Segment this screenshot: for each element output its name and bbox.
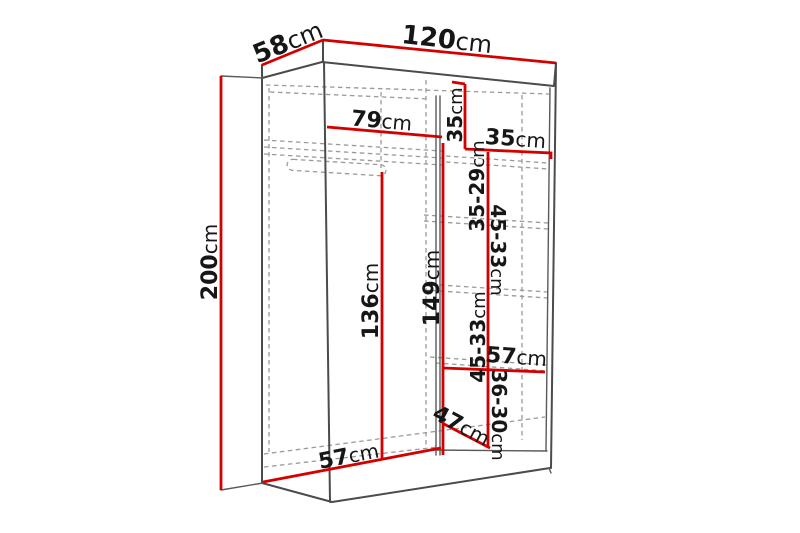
right-height-label: 149cm xyxy=(420,250,445,326)
floor-depth-label: 57cm xyxy=(316,439,381,475)
bottom-depth-label: 47cm xyxy=(428,401,494,452)
width-label: 120cm xyxy=(400,20,494,60)
wardrobe-dimension-diagram: 58cm 120cm 200cm 79cm 35cm 35cm 35-29cm … xyxy=(0,0,800,533)
top-left-width-label: 79cm xyxy=(350,106,413,136)
dimension-labels: 58cm 120cm 200cm 79cm 35cm 35cm 35-29cm … xyxy=(198,15,548,475)
depth-label: 58cm xyxy=(249,15,328,70)
diagram-svg: 58cm 120cm 200cm 79cm 35cm 35cm 35-29cm … xyxy=(0,0,800,533)
shelf-gap-2-label: 45-33cm xyxy=(486,204,510,295)
cubby-height-label: 35cm xyxy=(443,87,467,142)
shelf-width-label: 57cm xyxy=(485,343,548,372)
cubby-width-label: 35cm xyxy=(484,125,547,154)
hanging-rail xyxy=(287,159,386,176)
height-label: 200cm xyxy=(198,224,223,300)
left-height-label: 136cm xyxy=(359,263,384,339)
shelf-gap-1-label: 35-29cm xyxy=(465,140,489,231)
shelf-gap-3-label: 45-33cm xyxy=(466,291,490,382)
shelf-gap-4-label: 36-30cm xyxy=(487,369,511,460)
